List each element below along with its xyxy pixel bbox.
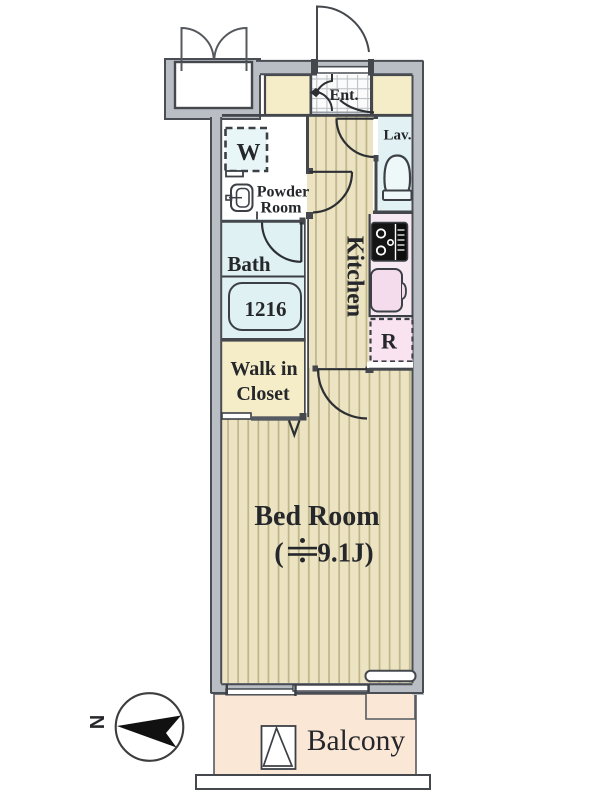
svg-text:W: W	[237, 140, 261, 166]
svg-text:Lav.: Lav.	[384, 128, 412, 144]
svg-text:1216: 1216	[245, 297, 287, 321]
svg-text:Powder: Powder	[257, 184, 309, 201]
svg-text:Room: Room	[261, 200, 303, 217]
svg-text:Balcony: Balcony	[307, 725, 406, 757]
svg-text:Bed Room: Bed Room	[254, 501, 379, 532]
svg-text:9.1J): 9.1J)	[317, 538, 373, 568]
svg-text:Closet: Closet	[236, 383, 290, 405]
svg-text:N: N	[85, 715, 107, 729]
svg-text:R: R	[381, 329, 398, 354]
svg-text:Ent.: Ent.	[330, 87, 359, 104]
svg-text:(: (	[274, 538, 284, 569]
svg-text:Walk in: Walk in	[230, 358, 297, 380]
svg-text:Kitchen: Kitchen	[342, 236, 368, 317]
svg-text:Bath: Bath	[227, 252, 271, 276]
